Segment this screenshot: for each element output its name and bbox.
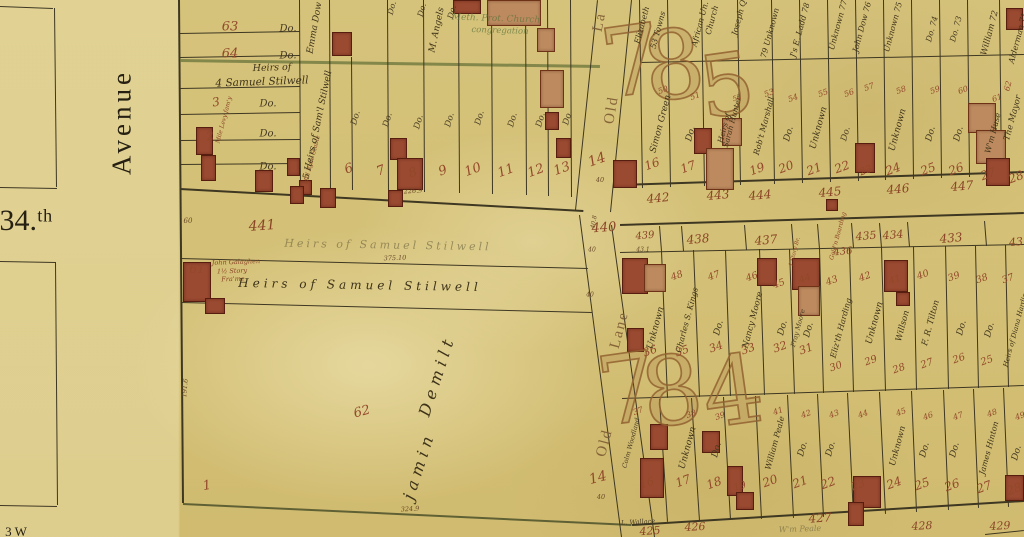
block-number: 43 — [1008, 235, 1023, 249]
building-footprint — [736, 492, 754, 510]
parcel-line — [907, 222, 910, 247]
lot-number: 21 — [804, 160, 823, 178]
owner-name: Unknown — [888, 108, 909, 153]
owner-name: Unknown 77 — [827, 0, 849, 51]
owner-name: Heirs of — [253, 62, 292, 74]
block-number: 434 — [882, 228, 904, 243]
parcel-line — [911, 0, 914, 179]
owner-name: Emma Dow — [306, 1, 325, 54]
lot-number: 9 — [437, 163, 450, 180]
map-label: Do. — [473, 110, 486, 127]
lot-number: 63 — [222, 20, 239, 35]
map-label: Do. — [1010, 444, 1024, 461]
building-footprint — [613, 160, 637, 188]
lot-number: 29 — [863, 354, 879, 369]
owner-name: Eliz'th Harding — [829, 297, 854, 359]
parcel-line — [0, 187, 57, 189]
parcel-line — [180, 188, 583, 212]
owner-name: Joseph Qu. — [730, 0, 750, 36]
building-footprint — [388, 190, 403, 207]
block-number: 435 — [855, 229, 877, 244]
map-label: Do. — [259, 162, 276, 173]
owner-name: Willson — [894, 309, 912, 342]
parcel-line — [913, 247, 917, 390]
map-label: 37 — [1000, 272, 1015, 286]
map-label: 46 — [922, 410, 935, 422]
lot-number: 6 — [343, 161, 356, 178]
map-label: Do. — [712, 319, 726, 336]
map-label: 54 — [787, 92, 800, 104]
map-label: Do. — [443, 112, 456, 129]
block-number: 426 — [684, 520, 706, 534]
map-label: Do. — [279, 24, 296, 35]
parcel-line — [0, 6, 53, 9]
map-label: 47 — [706, 269, 721, 283]
parcel-line — [851, 223, 854, 248]
parcel-line — [55, 262, 58, 505]
map-label: 41 — [772, 405, 785, 417]
lot-number: 20 — [760, 472, 779, 490]
block-number: 442 — [646, 190, 670, 206]
parcel-line — [984, 221, 987, 246]
lot-number: 18 — [704, 474, 723, 492]
street-label-34th: 34.ᵗʰ — [0, 204, 52, 238]
map-label: 42 — [800, 408, 813, 420]
building-footprint — [201, 155, 216, 181]
lot-number: 26 — [946, 160, 965, 178]
map-label: 61 — [991, 92, 1004, 104]
map-label: Do. — [796, 440, 810, 457]
lot-number: 26 — [942, 476, 961, 494]
lot-number: 14 — [586, 149, 608, 170]
building-footprint — [706, 148, 734, 190]
building-footprint — [255, 170, 273, 192]
owner-name: Heirs of Samuel Stilwell — [284, 237, 492, 254]
atlas-map: Avenue34.ᵗʰ3 WLaOldLaneOld78578444144044… — [0, 0, 1024, 537]
parcel-line — [883, 0, 886, 180]
map-label: 62 — [1002, 80, 1013, 92]
parcel-line — [681, 226, 684, 251]
block-number: 447 — [950, 178, 974, 194]
parcel-line — [458, 0, 460, 193]
building-footprint — [540, 70, 564, 108]
building-footprint — [332, 32, 352, 56]
lot-number: 10 — [463, 160, 484, 180]
map-label: Do. — [710, 441, 724, 458]
map-label: Do. — [381, 112, 394, 129]
lot-number: 12 — [526, 161, 547, 181]
lot-number: 20 — [776, 158, 795, 176]
parcel-line — [0, 261, 56, 263]
block-number: 445 — [818, 184, 842, 200]
lot-number: 11 — [496, 161, 517, 181]
building-footprint — [320, 188, 336, 208]
map-label: Do. — [349, 110, 362, 127]
owner-name: 79 Unknown — [759, 7, 781, 59]
lot-number: 64 — [222, 47, 239, 62]
owner-name: William 72 — [979, 9, 1001, 56]
map-label: 43.1 — [636, 247, 649, 254]
parcel-line — [620, 212, 1024, 226]
parcel-line — [620, 244, 1024, 253]
owner-name: Unknown 75 — [882, 1, 904, 53]
owner-name: John Galaghen — [212, 257, 261, 267]
map-label: 40 — [596, 176, 604, 184]
lot-number: 3 — [211, 94, 221, 109]
map-label: Do. — [824, 440, 838, 457]
building-footprint — [556, 138, 571, 158]
block-number: 444 — [748, 187, 772, 203]
lot-number: 7 — [375, 163, 388, 180]
map-label: 48 — [986, 407, 999, 419]
building-footprint — [537, 28, 555, 52]
owner-name-demilt: j a m i n — [399, 434, 437, 502]
lot-number: 26 — [951, 352, 967, 367]
block-number: 429 — [989, 519, 1011, 533]
parcel-line — [975, 246, 979, 388]
map-label: Do. — [561, 110, 574, 127]
map-label: 45 — [895, 406, 908, 418]
lot-number: 24 — [884, 474, 903, 492]
map-label: Do. — [386, 0, 398, 16]
map-label: 49 — [1014, 410, 1024, 422]
building-footprint — [390, 138, 407, 160]
map-label: Do. — [279, 51, 296, 62]
atlas-screenshot: Avenue34.ᵗʰ3 WLaOldLaneOld78578444144044… — [0, 0, 1024, 537]
map-label: Do. — [918, 441, 932, 458]
owner-name: M. Angels — [427, 7, 446, 54]
boundary-line-green — [180, 59, 600, 68]
parcel-line — [0, 505, 57, 507]
parcel-line — [817, 394, 824, 517]
parcel-line — [659, 226, 662, 251]
map-label: 60 — [184, 217, 193, 225]
lot-number: 30 — [828, 360, 844, 375]
map-label: Do. — [782, 125, 796, 142]
map-label: 375.10 — [383, 254, 406, 263]
map-label: 48 — [669, 269, 684, 283]
lot-number: 28 — [891, 362, 907, 377]
building-footprint — [290, 186, 304, 204]
lot-number: 14 — [587, 468, 608, 488]
map-label: Do. — [948, 441, 962, 458]
map-label: 47 — [952, 410, 965, 422]
block-number: 439 — [635, 230, 655, 243]
map-label: Do. — [259, 99, 276, 110]
lot-number: 19 — [747, 160, 766, 178]
lot-number: 32 — [771, 338, 789, 355]
lot-number: 16 — [642, 155, 661, 173]
owner-name: F. R. Tilton — [920, 299, 942, 347]
parcel-line — [54, 8, 57, 187]
map-label: 38 — [974, 272, 989, 286]
lot-number: 62 — [352, 403, 372, 422]
parcel-line — [787, 395, 794, 518]
lot-number: 21 — [790, 473, 809, 491]
map-label: 324.9 — [400, 505, 419, 514]
parcel-line — [181, 302, 592, 313]
map-label: Do. — [416, 2, 428, 18]
map-label: Do. — [776, 319, 790, 336]
map-label: Do. 74 — [924, 15, 940, 43]
map-label: Do. — [955, 319, 969, 336]
block-number: 446 — [886, 181, 910, 197]
map-label: 44 — [857, 408, 870, 420]
building-footprint — [287, 158, 300, 176]
map-label: 43 — [828, 408, 841, 420]
map-label: Do. — [259, 129, 276, 140]
lot-number: 27 — [919, 357, 935, 372]
map-label: 57 — [863, 81, 876, 93]
map-label: Do. — [924, 125, 938, 142]
lot-number: 61 — [189, 262, 204, 276]
map-label: 40 — [915, 268, 930, 282]
lot-number: 31 — [797, 340, 815, 357]
block-number: 443 — [706, 187, 730, 203]
lot-number: 22 — [832, 158, 851, 176]
owner-name: James Hinton — [978, 420, 1001, 475]
parcel-line — [879, 223, 882, 248]
map-label: 45 — [771, 277, 786, 291]
church-name: Meth. Prot. Church — [452, 12, 541, 25]
block-number: 437 — [754, 232, 778, 248]
map-label: 56 — [843, 87, 856, 99]
block-number: 428 — [911, 519, 933, 533]
parcel-line — [387, 0, 389, 192]
map-label: 40 — [588, 247, 596, 254]
parcel-line — [744, 225, 747, 250]
map-label: 226.9 — [403, 187, 422, 196]
parcel-line — [911, 391, 917, 512]
lot-number: 17 — [678, 158, 697, 176]
owner-name: Heirs of Samuel Stilwell — [238, 276, 482, 294]
block-number: 433 — [939, 230, 963, 246]
owner-name: Unknown — [888, 425, 908, 467]
map-label: Do. — [952, 125, 966, 142]
block-number: 441 — [248, 217, 276, 235]
lot-number: 17 — [673, 472, 692, 490]
block-number: 438 — [686, 231, 710, 247]
owner-name-demilt: D e m i l t — [415, 337, 458, 419]
owner-name: The Mayor — [1002, 94, 1024, 142]
street-label-partial: 3 W — [5, 524, 27, 537]
parcel-line — [180, 163, 300, 165]
church-name: congregation — [471, 25, 528, 37]
building-footprint — [848, 502, 864, 526]
parcel-line — [849, 248, 854, 392]
map-label: Do. 73 — [948, 15, 964, 43]
map-label: 40 — [586, 292, 594, 299]
parcel-line — [945, 246, 949, 389]
building-footprint — [826, 199, 838, 211]
owner-name: Unknown — [809, 106, 830, 151]
map-label: Do. — [506, 112, 519, 129]
street-label-avenue: Avenue — [107, 69, 138, 175]
parcel-line — [178, 0, 184, 503]
lot-number: 1 — [202, 478, 213, 494]
map-label: 40 — [597, 493, 605, 501]
building-footprint — [896, 292, 910, 306]
map-label: 43 — [824, 274, 839, 288]
parcel-line — [575, 0, 598, 210]
parcel-line — [180, 112, 300, 115]
map-label: Do. — [983, 321, 997, 338]
building-footprint — [205, 298, 225, 314]
map-label: 39 — [946, 270, 961, 284]
map-label: Do. — [802, 321, 816, 338]
lot-number: 13 — [552, 159, 573, 179]
owner-name: W'm Peale — [779, 524, 822, 534]
map-label: 42 — [857, 270, 872, 284]
map-label: 191.6 — [180, 378, 190, 397]
building-footprint — [644, 264, 666, 292]
map-label: 58 — [895, 84, 908, 96]
parcel-line — [817, 224, 820, 249]
lot-number: 25 — [979, 354, 995, 369]
map-label: Do. — [839, 126, 852, 143]
